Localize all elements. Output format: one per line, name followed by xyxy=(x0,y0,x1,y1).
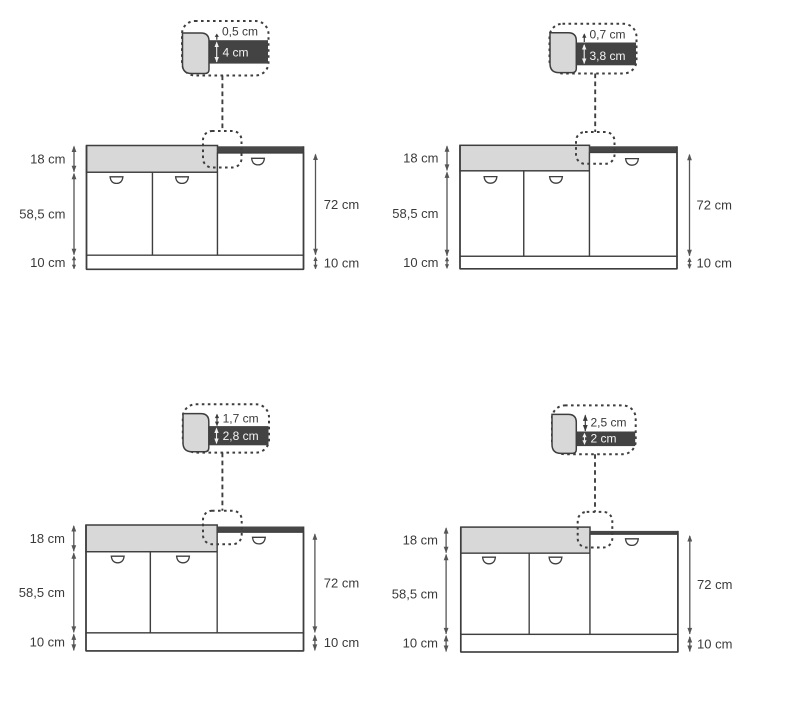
svg-text:1,7 cm: 1,7 cm xyxy=(223,411,259,425)
svg-text:10 cm: 10 cm xyxy=(30,255,65,270)
svg-text:10 cm: 10 cm xyxy=(697,637,732,652)
svg-text:0,5 cm: 0,5 cm xyxy=(222,25,258,39)
svg-text:10 cm: 10 cm xyxy=(403,636,438,651)
svg-text:4 cm: 4 cm xyxy=(223,46,249,60)
svg-text:18 cm: 18 cm xyxy=(30,531,65,546)
svg-text:18 cm: 18 cm xyxy=(403,151,438,166)
svg-text:0,7 cm: 0,7 cm xyxy=(590,27,626,41)
svg-text:72 cm: 72 cm xyxy=(324,576,359,591)
svg-text:2,5 cm: 2,5 cm xyxy=(591,415,627,429)
svg-text:58,5 cm: 58,5 cm xyxy=(392,206,438,221)
svg-text:2,8 cm: 2,8 cm xyxy=(223,429,259,443)
svg-text:72 cm: 72 cm xyxy=(324,197,359,212)
svg-text:72 cm: 72 cm xyxy=(697,198,732,213)
svg-text:58,5 cm: 58,5 cm xyxy=(19,206,65,221)
svg-text:10 cm: 10 cm xyxy=(30,634,65,649)
svg-text:10 cm: 10 cm xyxy=(403,255,438,270)
svg-text:72 cm: 72 cm xyxy=(697,577,732,592)
svg-text:10 cm: 10 cm xyxy=(324,255,359,270)
svg-text:18 cm: 18 cm xyxy=(30,151,65,166)
svg-text:10 cm: 10 cm xyxy=(324,635,359,650)
svg-text:18 cm: 18 cm xyxy=(403,533,438,548)
svg-text:58,5 cm: 58,5 cm xyxy=(19,585,65,600)
svg-text:3,8 cm: 3,8 cm xyxy=(590,49,626,63)
svg-text:2 cm: 2 cm xyxy=(591,432,617,446)
svg-text:58,5 cm: 58,5 cm xyxy=(392,586,438,601)
svg-text:10 cm: 10 cm xyxy=(697,256,732,271)
